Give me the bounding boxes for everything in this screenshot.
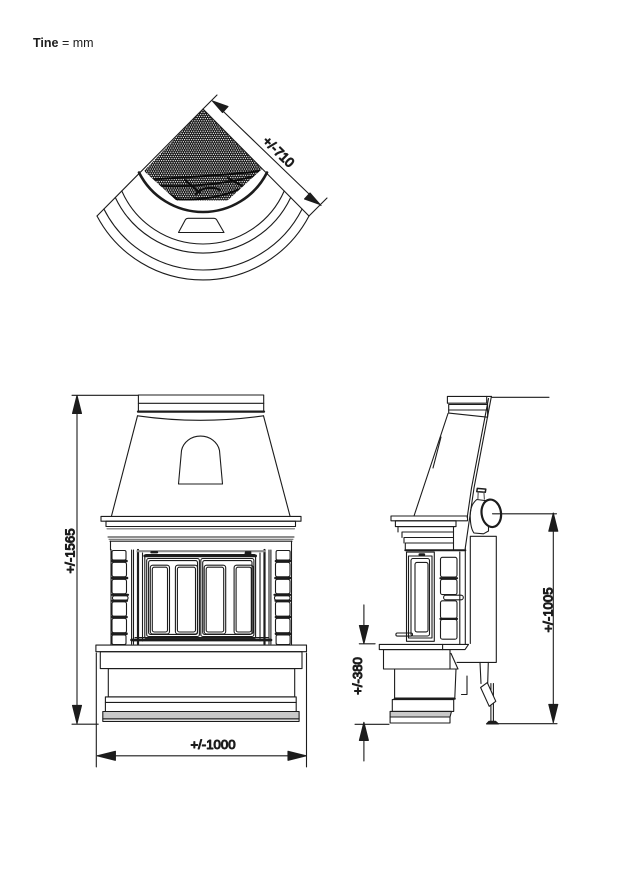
svg-text:Tine = mm: Tine = mm (33, 36, 94, 50)
svg-text:+/-380: +/-380 (350, 657, 365, 695)
svg-text:+/-1565: +/-1565 (62, 528, 77, 573)
svg-text:+/-1000: +/-1000 (190, 737, 235, 752)
svg-text:+/-1005: +/-1005 (540, 587, 555, 632)
